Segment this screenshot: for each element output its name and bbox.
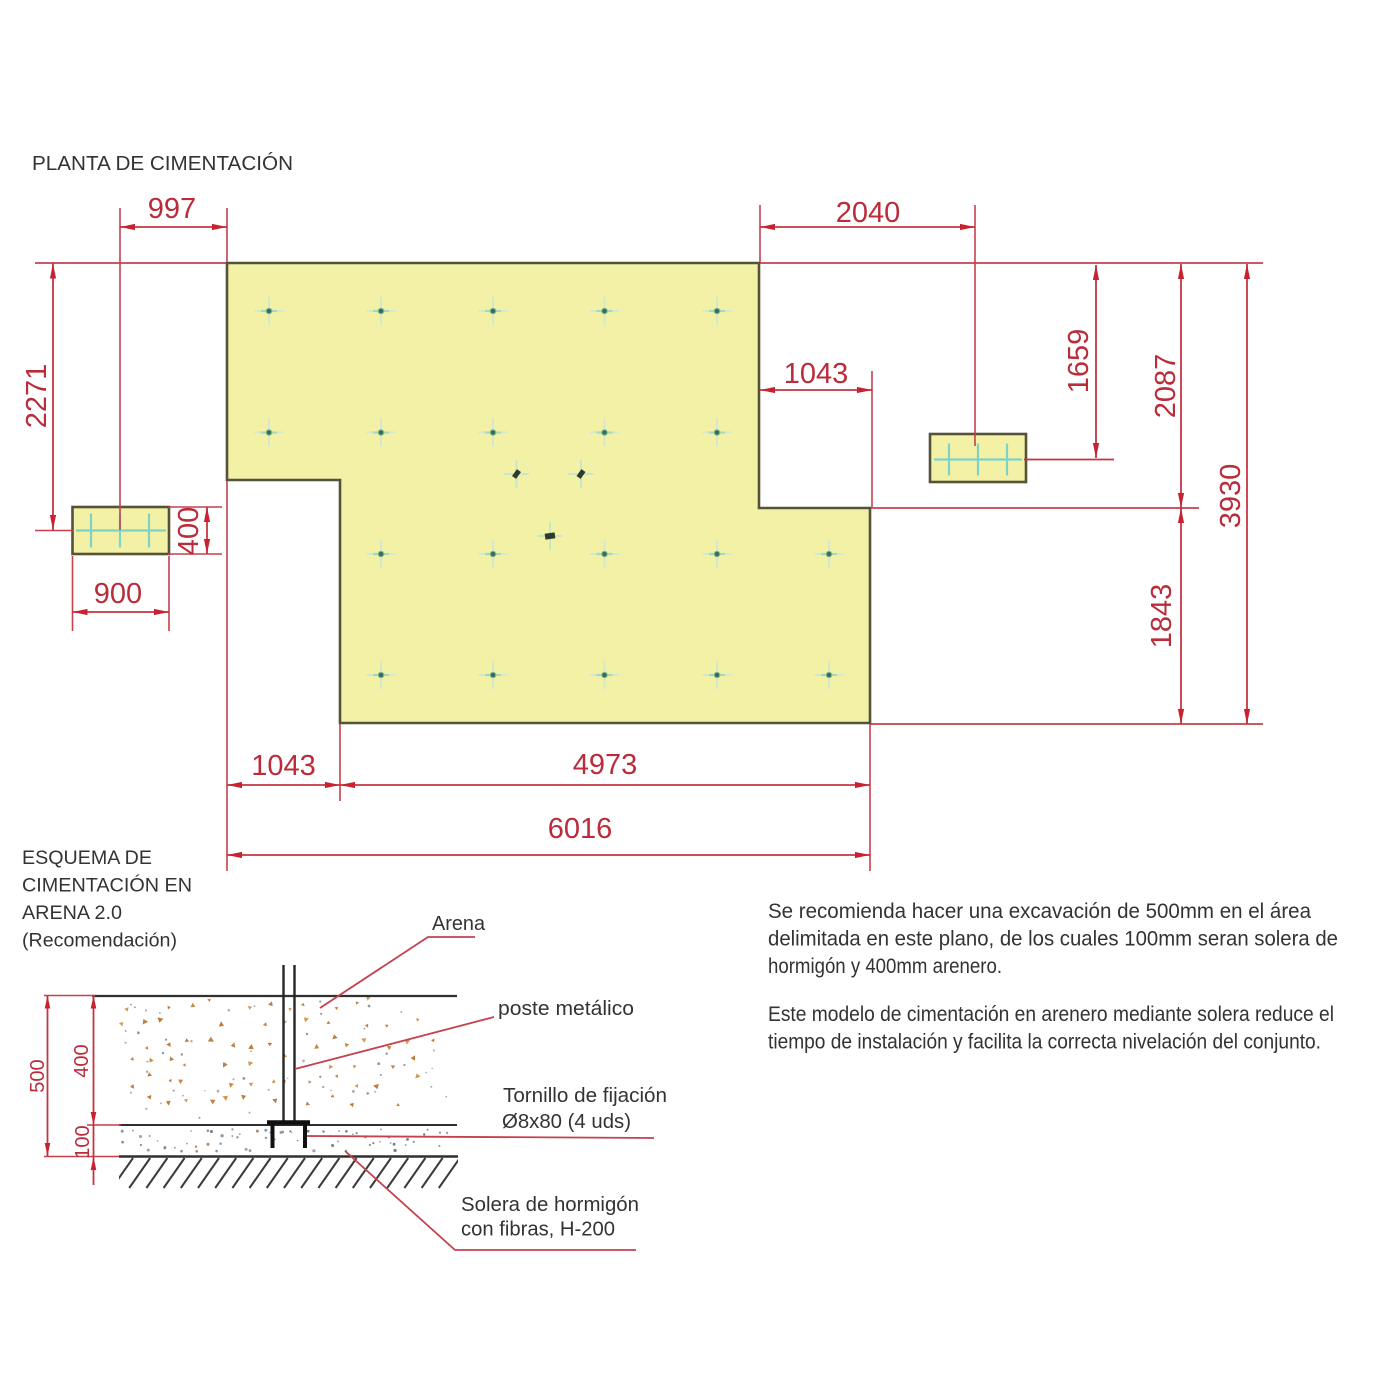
svg-text:PLANTA DE CIMENTACIÓN: PLANTA DE CIMENTACIÓN: [32, 152, 293, 175]
svg-text:400: 400: [173, 507, 205, 555]
svg-text:2087: 2087: [1150, 354, 1182, 419]
svg-text:con fibras, H-200: con fibras, H-200: [461, 1219, 615, 1241]
svg-text:CIMENTACIÓN EN: CIMENTACIÓN EN: [22, 875, 192, 897]
svg-text:Ø8x80 (4 uds): Ø8x80 (4 uds): [502, 1111, 631, 1133]
svg-text:Arena: Arena: [432, 913, 486, 935]
svg-text:Se recomienda hacer una excava: Se recomienda hacer una excavación de 50…: [768, 900, 1311, 923]
svg-text:1043: 1043: [251, 750, 316, 782]
svg-text:Solera de hormigón: Solera de hormigón: [461, 1194, 639, 1216]
svg-text:4973: 4973: [573, 749, 638, 781]
svg-text:poste metálico: poste metálico: [498, 998, 634, 1020]
svg-text:delimitada en este plano, de l: delimitada en este plano, de los cuales …: [768, 928, 1338, 951]
svg-text:100: 100: [72, 1125, 94, 1158]
svg-text:2040: 2040: [836, 197, 901, 229]
svg-text:500: 500: [27, 1059, 49, 1092]
svg-text:Tornillo de fijación: Tornillo de fijación: [503, 1085, 667, 1107]
svg-text:1043: 1043: [784, 358, 849, 390]
svg-text:6016: 6016: [548, 813, 613, 845]
svg-text:ARENA 2.0: ARENA 2.0: [22, 903, 122, 924]
svg-text:hormigón y 400mm arenero.: hormigón y 400mm arenero.: [768, 955, 1002, 978]
svg-text:(Recomendación): (Recomendación): [22, 931, 177, 952]
svg-text:997: 997: [148, 193, 196, 225]
svg-text:2271: 2271: [21, 364, 53, 429]
svg-text:ESQUEMA DE: ESQUEMA DE: [22, 848, 152, 869]
svg-text:900: 900: [94, 578, 142, 610]
svg-text:3930: 3930: [1215, 464, 1247, 529]
svg-text:tiempo de instalación y facili: tiempo de instalación y facilita la corr…: [768, 1031, 1321, 1054]
svg-text:400: 400: [71, 1044, 93, 1077]
svg-text:Este modelo de cimentación en: Este modelo de cimentación en arenero me…: [768, 1003, 1334, 1026]
svg-text:1843: 1843: [1146, 584, 1178, 649]
svg-text:1659: 1659: [1063, 329, 1095, 394]
